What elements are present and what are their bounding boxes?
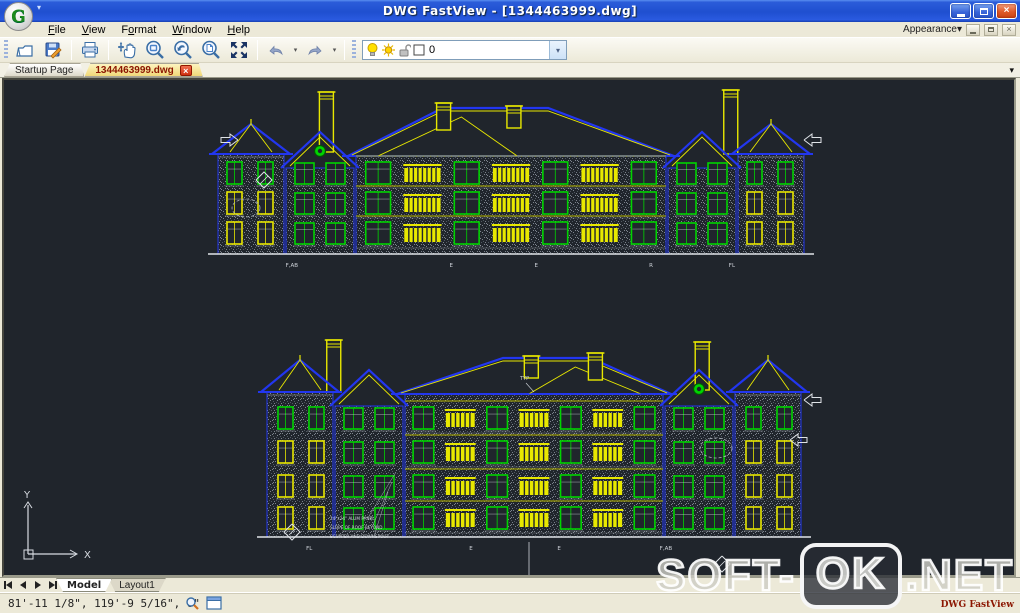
svg-text:TYP: TYP [519, 376, 529, 382]
undo-dropdown[interactable]: ▾ [291, 46, 300, 54]
pan-hand-icon [116, 39, 138, 61]
svg-text:FL: FL [306, 546, 313, 552]
toolbar: ▾ ▾ [0, 37, 1020, 63]
tab-list-dropdown[interactable]: ▾ [1009, 65, 1014, 76]
layer-on-bulb-icon [366, 42, 379, 58]
next-sheet-button[interactable] [30, 578, 45, 592]
status-zoom-icon[interactable] [185, 596, 200, 611]
cursor-coordinates: 81'-11 1/8", 119'-9 5/16", 0" [0, 597, 200, 610]
open-button[interactable] [12, 38, 38, 62]
minimize-button[interactable] [950, 3, 971, 19]
fullscreen-arrows-icon [228, 39, 250, 61]
svg-text:F,AB: F,AB [660, 546, 673, 552]
print-button[interactable] [77, 38, 103, 62]
toolbar-separator [344, 40, 345, 60]
svg-text:R: R [649, 263, 653, 269]
mdi-restore-button[interactable] [984, 24, 998, 36]
tab-startup-page[interactable]: Startup Page [4, 63, 84, 77]
undo-button[interactable] [263, 38, 289, 62]
prev-sheet-button[interactable] [15, 578, 30, 592]
menu-file[interactable]: File [40, 24, 74, 36]
layer-name: 0 [429, 44, 547, 56]
redo-dropdown[interactable]: ▾ [330, 46, 339, 54]
window-menu-chevron-icon[interactable]: ▾ [37, 3, 41, 12]
svg-text:SLOPE OF ROOF BEYOND: SLOPE OF ROOF BEYOND [330, 525, 382, 530]
layer-color-swatch [413, 44, 425, 56]
save-floppy-icon [43, 40, 63, 60]
document-tab-bar: Startup Page 1344463999.dwg × ▾ [0, 63, 1020, 78]
menu-format[interactable]: Format [113, 24, 164, 36]
zoom-previous-icon [172, 39, 194, 61]
mdi-minimize-button[interactable] [966, 24, 980, 36]
tab-model[interactable]: Model [56, 578, 112, 592]
cad-drawing: F,ABEERFLFLEEF,AB24"x24" ALUM PANELSLOPE… [4, 80, 1014, 575]
zoom-window-icon [144, 39, 166, 61]
svg-text:SCUPPER AND DOWNSPOUT: SCUPPER AND DOWNSPOUT [330, 534, 389, 539]
undo-icon [266, 40, 286, 60]
save-button[interactable] [40, 38, 66, 62]
drawing-canvas[interactable]: F,ABEERFLFLEEF,AB24"x24" ALUM PANELSLOPE… [2, 78, 1016, 577]
status-window-icon[interactable] [206, 596, 222, 611]
app-logo-icon[interactable]: G [4, 2, 33, 31]
svg-text:E: E [449, 263, 453, 269]
fullscreen-button[interactable] [226, 38, 252, 62]
layer-dropdown-button[interactable]: ▾ [549, 41, 566, 59]
print-icon [80, 40, 100, 60]
svg-text:FL: FL [729, 263, 736, 269]
tab-drawing-file[interactable]: 1344463999.dwg × [84, 63, 202, 77]
zoom-window-button[interactable] [142, 38, 168, 62]
svg-text:Y: Y [23, 490, 31, 501]
toolbar-separator [71, 40, 72, 60]
app-window: DWG FastView - [1344463999.dwg] × G ▾ Fi… [0, 0, 1020, 613]
menu-help[interactable]: Help [219, 24, 258, 36]
menu-window[interactable]: Window [164, 24, 219, 36]
toolbar-grip[interactable] [4, 40, 8, 60]
layer-toolbar-grip[interactable] [352, 40, 356, 60]
tab-close-icon[interactable]: × [180, 65, 192, 76]
redo-icon [305, 40, 325, 60]
toolbar-separator [108, 40, 109, 60]
svg-text:X: X [84, 550, 91, 561]
menu-bar: File View Format Window Help Appearance▾… [0, 22, 1020, 37]
open-folder-icon [15, 40, 35, 60]
window-title: DWG FastView - [1344463999.dwg] [0, 4, 1020, 18]
pan-button[interactable] [114, 38, 140, 62]
appearance-menu[interactable]: Appearance▾ [903, 24, 962, 35]
toolbar-separator [257, 40, 258, 60]
brand-label: DWG FastView [941, 600, 1014, 610]
menu-view[interactable]: View [74, 24, 114, 36]
tab-layout1[interactable]: Layout1 [108, 578, 166, 592]
restore-button[interactable] [973, 3, 994, 19]
redo-button[interactable] [302, 38, 328, 62]
first-sheet-button[interactable] [0, 578, 15, 592]
zoom-extents-icon [200, 39, 222, 61]
svg-text:E: E [557, 546, 561, 552]
title-bar[interactable]: DWG FastView - [1344463999.dwg] × [0, 0, 1020, 22]
layer-unlock-icon [398, 42, 411, 58]
sheet-tab-bar: Model Layout1 [0, 577, 1020, 592]
close-button[interactable]: × [996, 3, 1017, 19]
zoom-previous-button[interactable] [170, 38, 196, 62]
svg-text:E: E [469, 546, 473, 552]
zoom-extents-button[interactable] [198, 38, 224, 62]
mdi-close-button[interactable]: × [1002, 24, 1016, 36]
svg-text:F,AB: F,AB [286, 263, 299, 269]
layer-combobox[interactable]: 0 ▾ [362, 40, 567, 60]
layer-freeze-sun-icon [381, 42, 396, 58]
svg-text:E: E [534, 263, 538, 269]
status-bar: 81'-11 1/8", 119'-9 5/16", 0" DWG FastVi… [0, 592, 1020, 613]
